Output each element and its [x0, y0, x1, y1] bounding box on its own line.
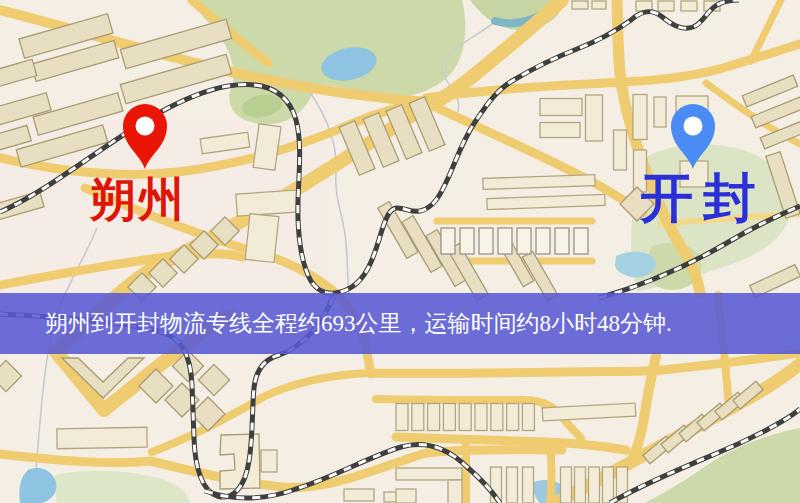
building — [574, 228, 588, 254]
building — [589, 467, 600, 503]
pin-body — [123, 104, 167, 169]
info-banner: 朔州到开封物流专线全程约693公里，运输时间约8小时48分钟. — [0, 293, 800, 354]
building — [448, 480, 462, 503]
building — [57, 427, 147, 449]
route-info-text: 朔州到开封物流专线全程约693公里，运输时间约8小时48分钟. — [45, 308, 672, 339]
map-canvas[interactable] — [0, 0, 800, 503]
pin-body — [671, 104, 715, 169]
origin-city-label: 朔州 — [90, 177, 186, 223]
building — [540, 123, 580, 138]
building — [459, 404, 471, 431]
building — [441, 228, 455, 254]
building — [561, 467, 572, 503]
building — [572, 1, 588, 9]
building — [396, 468, 462, 480]
building — [654, 97, 666, 127]
building — [475, 404, 487, 431]
building — [540, 99, 582, 116]
building — [344, 489, 374, 501]
building — [396, 404, 408, 431]
building — [498, 228, 512, 254]
building — [428, 404, 440, 431]
building — [592, 1, 606, 9]
road — [550, 442, 552, 503]
destination-pin[interactable] — [670, 102, 716, 170]
pin-hole — [136, 117, 155, 136]
building — [681, 1, 697, 11]
building — [507, 467, 518, 503]
building — [523, 467, 534, 503]
map-pin-icon — [122, 102, 168, 170]
building — [460, 228, 474, 254]
building — [443, 404, 455, 431]
building — [603, 467, 614, 503]
building — [261, 450, 277, 472]
destination-city-label: 开封 — [640, 172, 766, 225]
building — [575, 467, 586, 503]
building — [586, 95, 603, 141]
building — [522, 404, 534, 431]
building — [633, 95, 647, 140]
building — [507, 404, 519, 431]
map-screenshot: 朔州 开封 朔州到开封物流专线全程约693公里，运输时间约8小时48分钟. — [0, 0, 800, 503]
building — [412, 404, 424, 431]
building — [479, 228, 493, 254]
building — [555, 228, 569, 254]
building — [658, 1, 674, 11]
building — [396, 489, 416, 503]
pin-hole — [684, 117, 703, 136]
building — [491, 404, 503, 431]
origin-pin[interactable] — [122, 102, 168, 170]
building — [614, 130, 627, 170]
building — [536, 228, 550, 254]
building — [236, 190, 300, 216]
building — [517, 228, 531, 254]
map-pin-icon — [670, 102, 716, 170]
building — [245, 214, 279, 263]
